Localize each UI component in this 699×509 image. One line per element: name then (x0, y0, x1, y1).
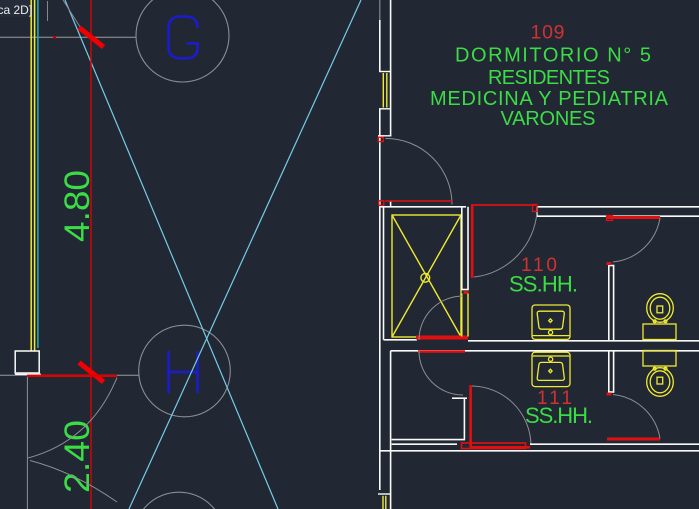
svg-text:4.80: 4.80 (58, 170, 97, 242)
svg-text:ca 2D]: ca 2D] (0, 3, 32, 17)
svg-text:SS.HH.: SS.HH. (525, 403, 593, 428)
svg-text:SS.HH.: SS.HH. (509, 272, 578, 297)
svg-text:2.40: 2.40 (58, 420, 97, 493)
svg-text:DORMITORIO N° 5: DORMITORIO N° 5 (455, 45, 651, 67)
svg-text:MEDICINA Y PEDIATRIA: MEDICINA Y PEDIATRIA (430, 88, 669, 110)
svg-text:109: 109 (531, 22, 565, 44)
svg-text:VARONES: VARONES (501, 108, 596, 130)
svg-text:RESIDENTES: RESIDENTES (488, 67, 610, 89)
